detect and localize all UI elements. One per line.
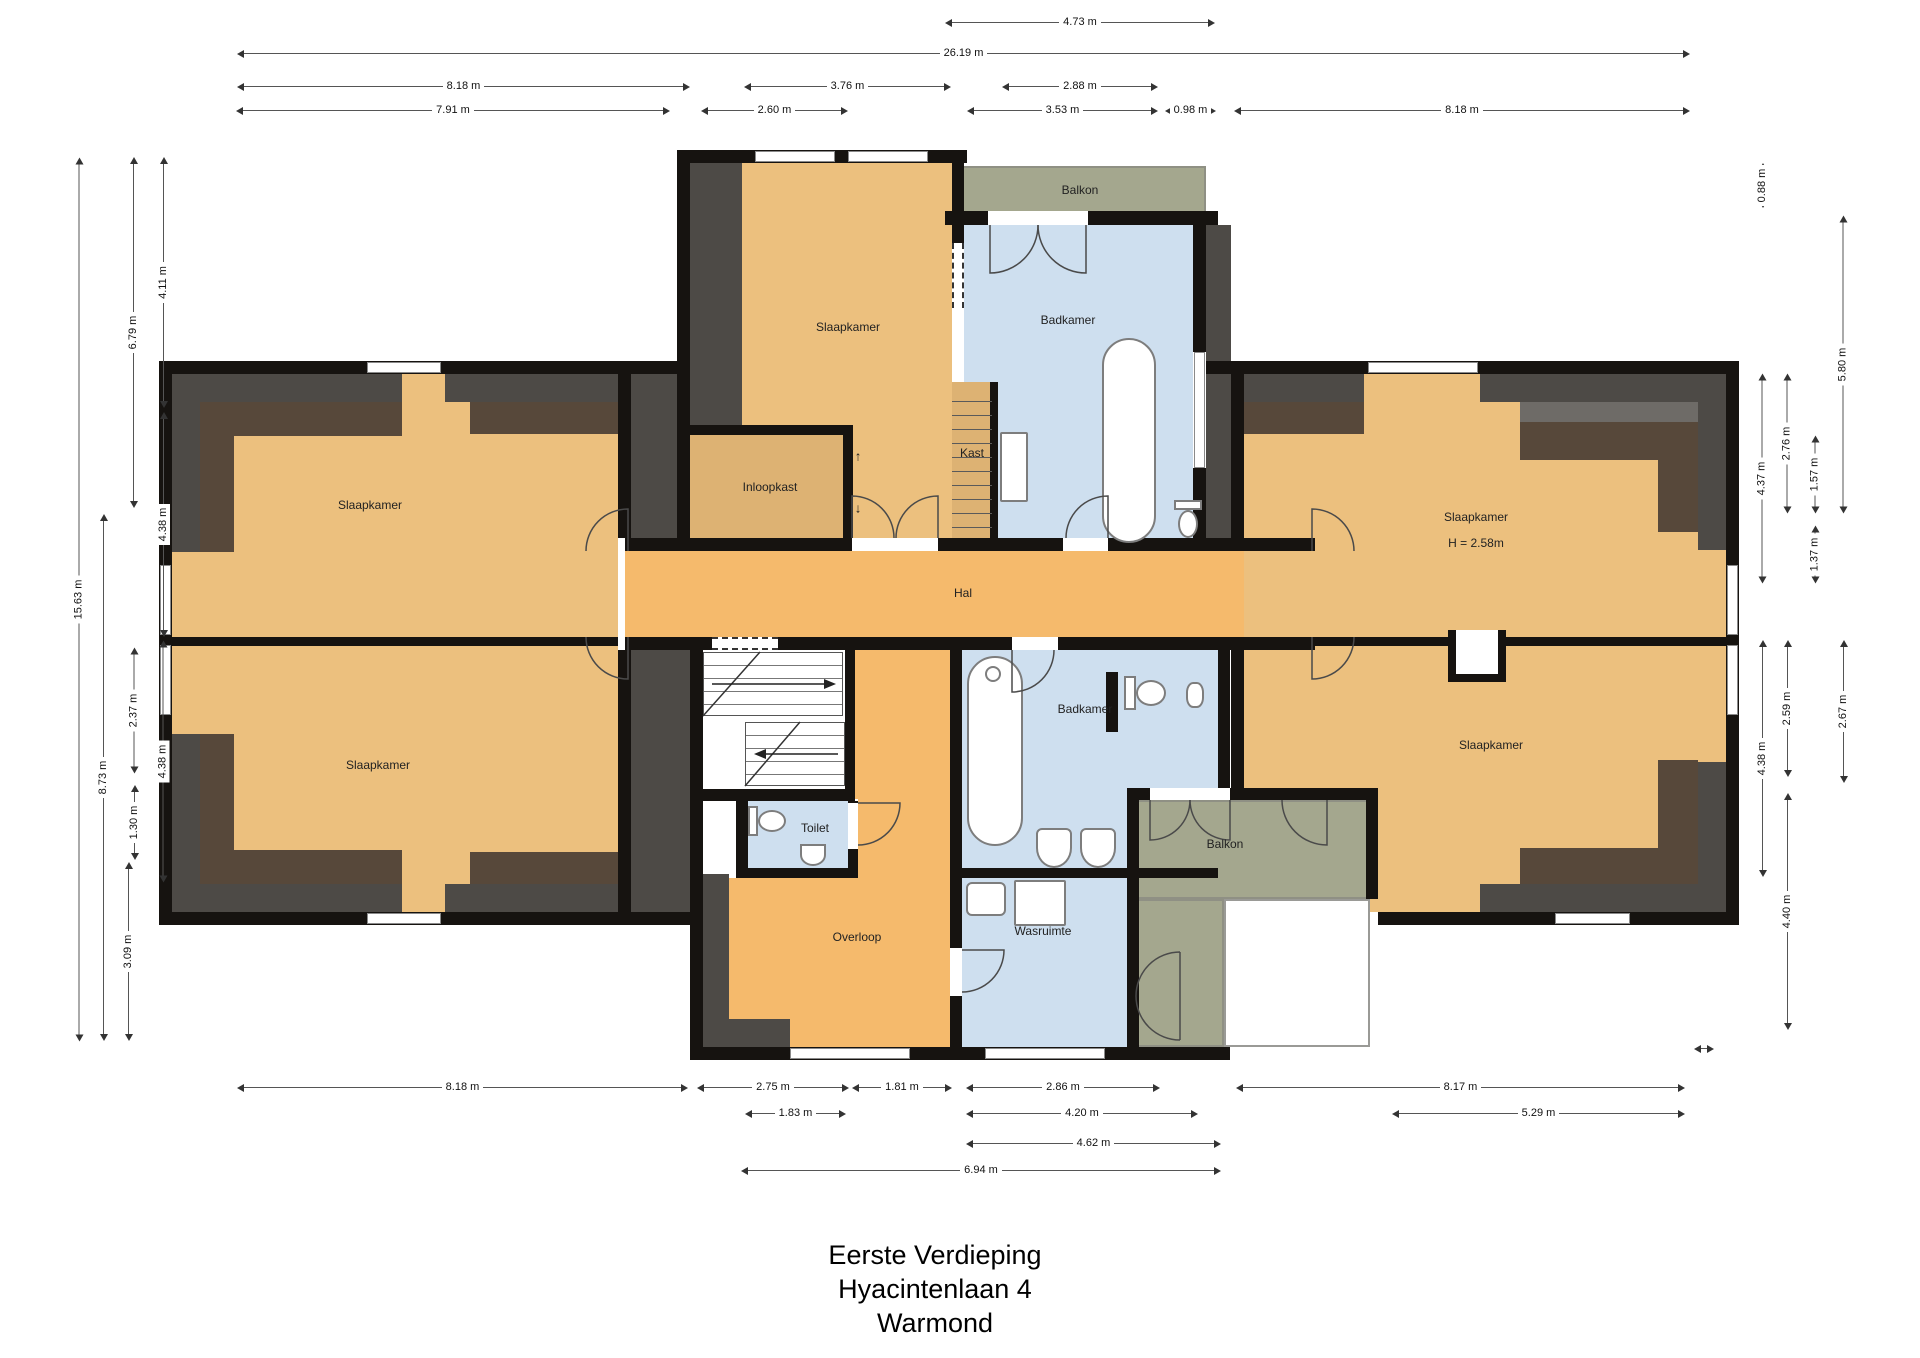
roof-shade-brown xyxy=(470,402,618,434)
door-opening xyxy=(950,948,962,996)
roof-shade xyxy=(1244,374,1364,402)
room-label-slaapkamer-right-upper: Slaapkamer xyxy=(1444,510,1508,524)
dim-top-353: 3.53 m xyxy=(967,104,1158,117)
loft-ladder xyxy=(952,388,992,536)
dim-bottom-181: 1.81 m xyxy=(852,1081,952,1094)
dim-right-137: 1.37 m xyxy=(1809,526,1822,584)
wall xyxy=(1726,374,1739,912)
wall xyxy=(690,1047,1230,1060)
roof-shade-brown xyxy=(1244,402,1364,434)
bathtub xyxy=(967,656,1023,846)
roof-shade xyxy=(172,884,402,912)
dim-right-267: 2.67 m xyxy=(1837,640,1850,783)
wall xyxy=(1231,374,1244,538)
wall xyxy=(1218,650,1230,800)
dim-top-818a: 8.18 m xyxy=(237,80,690,93)
roof-shade-brown xyxy=(1658,460,1698,532)
toilet-bowl xyxy=(758,810,786,832)
window xyxy=(1555,913,1630,924)
roof-shade xyxy=(1206,225,1231,538)
dashed-roofline xyxy=(952,243,964,308)
dashed-opening xyxy=(712,637,778,650)
dim-right-259: 2.59 m xyxy=(1781,640,1794,777)
bathtub xyxy=(1102,338,1156,543)
dim-top-473: 4.73 m xyxy=(945,16,1215,29)
dim-right-440: 4.40 m xyxy=(1781,793,1794,1030)
room-label-overloop: Overloop xyxy=(833,930,882,944)
dim-top-818b: 8.18 m xyxy=(1234,104,1690,117)
dim-left-411: 4.11 m xyxy=(157,157,170,408)
wall xyxy=(172,637,618,646)
roof-shade xyxy=(1698,762,1726,884)
dim-left-873: 8.73 m xyxy=(97,514,110,1041)
dim-right-580: 5.80 m xyxy=(1837,216,1850,514)
roof-shade-brown xyxy=(1520,848,1698,884)
roof-shade-brown xyxy=(200,734,234,850)
toilet-tank xyxy=(1174,500,1202,510)
room-label-inloopkast: Inloopkast xyxy=(743,480,798,494)
dim-right-438: 4.38 m xyxy=(1756,640,1769,877)
wall xyxy=(618,374,631,538)
door-opening xyxy=(852,538,938,551)
roof-shade-brown xyxy=(200,436,234,552)
toilet-bowl xyxy=(1178,510,1198,538)
dim-bottom-817: 8.17 m xyxy=(1236,1081,1685,1094)
wall xyxy=(736,801,748,868)
dim-bottom-420: 4.20 m xyxy=(966,1107,1198,1120)
room-overloop-mid xyxy=(858,799,950,878)
passage-arrow-up-icon: ↑ xyxy=(855,449,862,464)
roof-shade xyxy=(690,163,742,425)
wall xyxy=(1231,650,1244,790)
dim-left-679: 6.79 m xyxy=(127,157,140,508)
window xyxy=(1727,645,1738,715)
room-slaapkamer-top xyxy=(742,163,952,425)
roof-shade xyxy=(1520,402,1698,422)
room-label-badkamer-lower: Badkamer xyxy=(1058,702,1113,716)
room-label-slaapkamer-left-lower: Slaapkamer xyxy=(346,758,410,772)
roof-shade xyxy=(624,650,690,912)
vanity-sink xyxy=(1000,432,1028,502)
dim-top-791: 7.91 m xyxy=(236,104,670,117)
room-label-kast: Kast xyxy=(960,446,984,460)
roof-shade-brown xyxy=(1520,422,1698,460)
wall xyxy=(677,163,690,538)
pedestal-sink xyxy=(1186,682,1204,708)
room-label-hal: Hal xyxy=(954,586,972,600)
roof-shade-brown xyxy=(470,852,618,884)
room-label-slaapkamer-right-upper-height: H = 2.58m xyxy=(1448,536,1504,550)
roof-shade xyxy=(1480,374,1726,402)
dim-left-237: 2.37 m xyxy=(128,648,141,774)
window xyxy=(755,151,835,162)
window xyxy=(367,362,441,373)
window xyxy=(1727,565,1738,635)
sink xyxy=(1036,828,1072,868)
dim-left-130: 1.30 m xyxy=(128,785,141,860)
wall xyxy=(1127,800,1139,1047)
roof-shade xyxy=(445,374,618,402)
door-opening xyxy=(988,211,1088,225)
wall xyxy=(845,650,855,789)
room-overloop-corridor xyxy=(855,649,950,799)
dim-right-088: 0.88 m xyxy=(1756,163,1769,208)
wall xyxy=(962,868,1218,878)
dim-right-437: 4.37 m xyxy=(1756,374,1769,584)
stair-flight-up xyxy=(703,652,843,716)
toilet-tank xyxy=(1124,676,1136,710)
window xyxy=(790,1048,910,1059)
balcony-railing-terrace xyxy=(1224,899,1370,1047)
wall xyxy=(625,538,1315,551)
room-label-slaapkamer-top: Slaapkamer xyxy=(816,320,880,334)
roof-shade xyxy=(172,374,402,402)
wall xyxy=(690,425,853,435)
room-label-wasruimte: Wasruimte xyxy=(1015,924,1072,938)
room-balkon-lower-b xyxy=(1136,899,1224,1047)
dim-top-098: 0.98 m xyxy=(1165,104,1216,117)
wall xyxy=(736,868,858,878)
toilet-tank xyxy=(748,806,758,836)
roof-shade xyxy=(172,734,200,884)
window xyxy=(1194,352,1205,468)
wall xyxy=(618,650,631,912)
roof-shade-brown xyxy=(200,402,402,436)
wall xyxy=(690,650,703,1047)
dim-bottom-529: 5.29 m xyxy=(1392,1107,1685,1120)
room-balkon-lower-a xyxy=(1136,800,1370,899)
dim-top-288: 2.88 m xyxy=(1002,80,1158,93)
window xyxy=(848,151,928,162)
door-opening xyxy=(1150,788,1230,800)
dim-bottom-275: 2.75 m xyxy=(697,1081,849,1094)
bathtub-drain xyxy=(985,666,1001,682)
dim-right-276: 2.76 m xyxy=(1781,374,1794,514)
room-slaapkamer-top-ext xyxy=(853,425,952,538)
roof-shade xyxy=(1480,884,1726,912)
dim-bottom-694: 6.94 m xyxy=(741,1164,1221,1177)
roof-shade xyxy=(703,1019,790,1047)
dim-right-157: 1.57 m xyxy=(1809,436,1822,514)
door-opening xyxy=(848,803,858,849)
dim-left-309: 3.09 m xyxy=(122,862,135,1041)
plan-title: Eerste Verdieping Hyacintenlaan 4 Warmon… xyxy=(828,1238,1041,1340)
roof-shade xyxy=(1698,402,1726,550)
window xyxy=(985,1048,1105,1059)
plan-title-line2: Hyacintenlaan 4 xyxy=(828,1272,1041,1306)
floorplan-canvas: Slaapkamer Badkamer Balkon Inloopkast Ka… xyxy=(0,0,1920,1358)
room-label-balkon-lower: Balkon xyxy=(1207,837,1244,851)
roof-shade-brown xyxy=(200,850,402,884)
wall xyxy=(690,789,855,801)
stair-flight-down xyxy=(745,722,845,786)
wall xyxy=(1366,800,1378,899)
room-label-toilet: Toilet xyxy=(801,821,829,835)
dim-bottom-462: 4.62 m xyxy=(966,1137,1221,1150)
scale-marker xyxy=(1694,1042,1714,1055)
plan-title-line3: Warmond xyxy=(828,1306,1041,1340)
dim-bottom-818: 8.18 m xyxy=(237,1081,688,1094)
dim-left-438a: 4.38 m xyxy=(157,412,170,637)
window xyxy=(367,913,441,924)
dim-top-2619: 26.19 m xyxy=(237,47,1690,60)
window xyxy=(1368,362,1478,373)
door-opening xyxy=(1012,637,1058,650)
dim-left-438b: 4.38 m xyxy=(157,641,170,883)
toilet-bowl xyxy=(1136,680,1166,706)
roof-shade xyxy=(172,402,200,552)
corner-sink xyxy=(800,844,826,866)
dim-top-376: 3.76 m xyxy=(744,80,951,93)
room-label-badkamer-top: Badkamer xyxy=(1041,313,1096,327)
wall xyxy=(952,163,964,243)
roof-shade xyxy=(445,884,618,912)
sink xyxy=(1080,828,1116,868)
room-badkamer-top xyxy=(964,225,1193,538)
dim-left-1563: 15.63 m xyxy=(73,158,86,1042)
passage-arrow-down-icon: ↓ xyxy=(855,501,862,516)
wall xyxy=(843,425,853,538)
washer xyxy=(1014,880,1066,926)
door-opening xyxy=(1063,538,1108,551)
dim-top-260: 2.60 m xyxy=(701,104,848,117)
room-label-balkon-top: Balkon xyxy=(1062,183,1099,197)
wall xyxy=(1315,637,1726,646)
room-label-slaapkamer-right-lower: Slaapkamer xyxy=(1459,738,1523,752)
wall xyxy=(1193,225,1206,352)
chimney-notch xyxy=(1448,630,1506,682)
room-label-slaapkamer-left-upper: Slaapkamer xyxy=(338,498,402,512)
utility-sink xyxy=(966,882,1006,916)
dim-bottom-183: 1.83 m xyxy=(745,1107,846,1120)
dim-bottom-286: 2.86 m xyxy=(966,1081,1160,1094)
roof-shade-brown xyxy=(1658,760,1698,848)
plan-title-line1: Eerste Verdieping xyxy=(828,1238,1041,1272)
